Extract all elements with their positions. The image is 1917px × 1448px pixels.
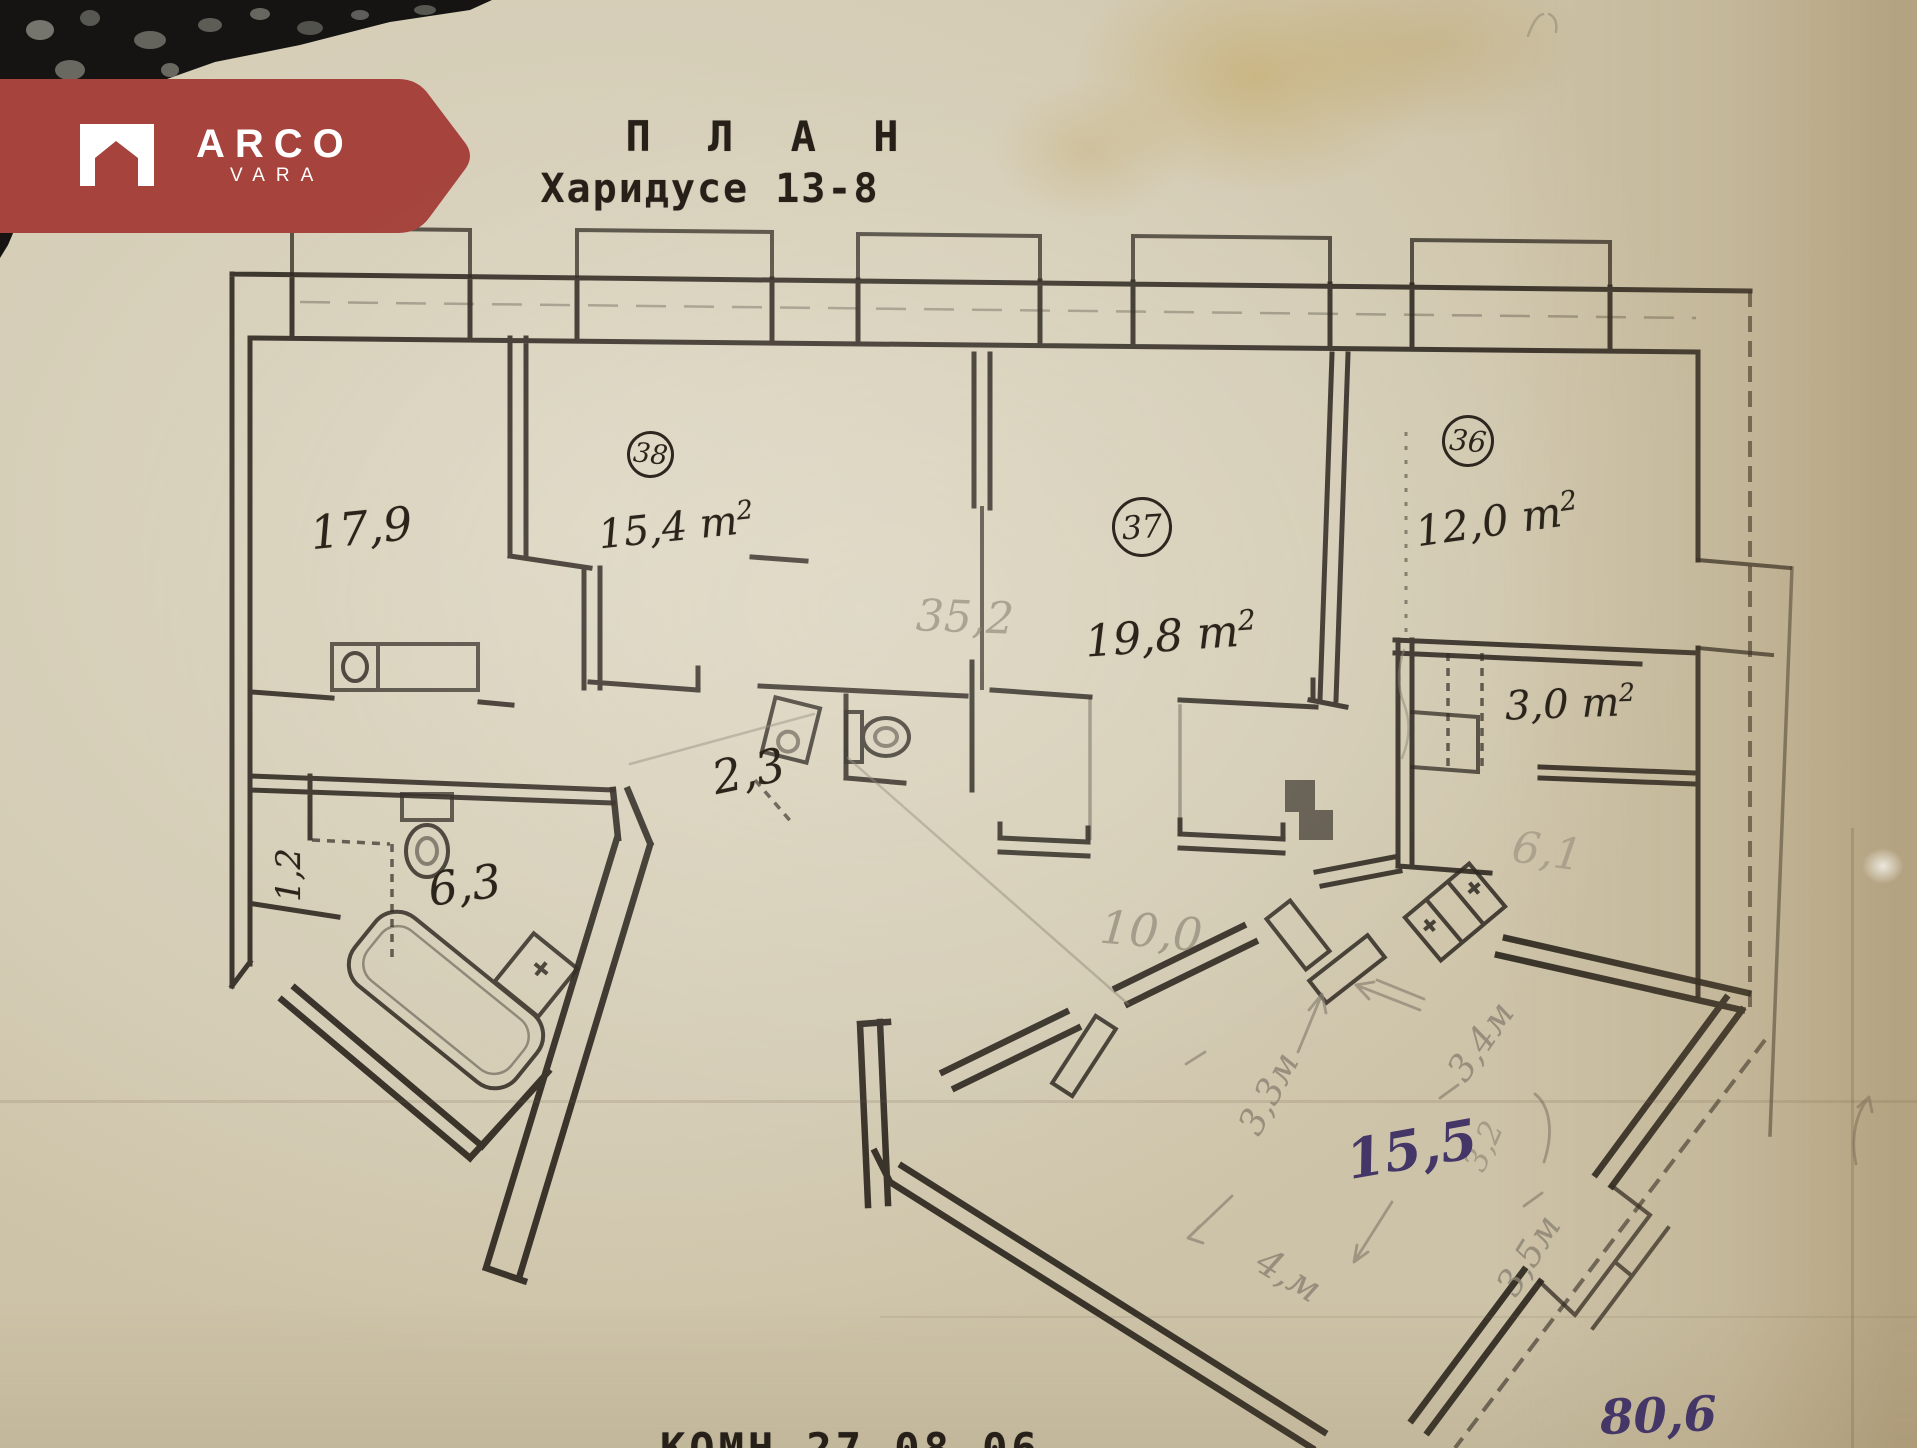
room-number-37-text: 37 (1120, 507, 1163, 548)
room-area-38-sup: 2 (735, 495, 755, 527)
hall-area-2-3: 2,3 (708, 741, 789, 801)
room-area-37-value: 19,8 m (1083, 606, 1240, 668)
room-area-15-5: 15,5 (1342, 1111, 1481, 1187)
niche-area-1-2: 1,2 (272, 848, 306, 902)
pencil-area-35-2: 35,2 (915, 594, 1014, 641)
closet-area-3-0: 3,0 m2 (1504, 680, 1636, 727)
room-area-17-9: 17,9 (308, 500, 415, 556)
logo-brand-text: ARCO (196, 124, 354, 164)
logo-sub-text: VARA (230, 166, 324, 185)
dim-4m: 4,м (1250, 1241, 1328, 1308)
room-number-36: 36 (1440, 413, 1496, 469)
room-area-36: 12,0 m2 (1413, 487, 1581, 553)
room-number-38-text: 38 (632, 437, 669, 471)
room-number-36-text: 36 (1448, 422, 1488, 459)
dim-3-4m: 3,4м (1442, 996, 1521, 1088)
labels-layer: ARCO VARA П Л А Н Харидусе 13-8 17,9 38 … (0, 0, 1917, 1448)
room-area-36-value: 12,0 m (1412, 487, 1564, 556)
room-area-38: 15,4 m2 (596, 497, 756, 555)
scanned-floor-plan-page: ARCO VARA П Л А Н Харидусе 13-8 17,9 38 … (0, 0, 1917, 1448)
dim-3-5m: 3,5м (1491, 1210, 1568, 1303)
total-area-80-6: 80,6 (1599, 1390, 1718, 1442)
pencil-area-10-0: 10,0 (1098, 904, 1204, 959)
room-number-37: 37 (1110, 495, 1174, 559)
pencil-area-6-1: 6,1 (1509, 825, 1584, 878)
room-area-36-sup: 2 (1558, 485, 1579, 518)
room-area-37-sup: 2 (1237, 603, 1257, 637)
footer-stamp-cropped: КОМН 27 08 06 (660, 1424, 1041, 1448)
room-number-38: 38 (625, 429, 677, 481)
closet-area-3-0-value: 3,0 m (1504, 680, 1620, 730)
room-area-38-value: 15,4 m (596, 498, 740, 558)
bathroom-area-6-3: 6,3 (425, 857, 504, 913)
room-area-37: 19,8 m2 (1084, 606, 1258, 665)
page-subtitle-address: Харидусе 13-8 (490, 166, 930, 212)
dim-3-3m: 3,3м (1233, 1047, 1306, 1141)
page-title: П Л А Н (560, 112, 980, 161)
closet-area-3-0-sup: 2 (1618, 678, 1635, 708)
